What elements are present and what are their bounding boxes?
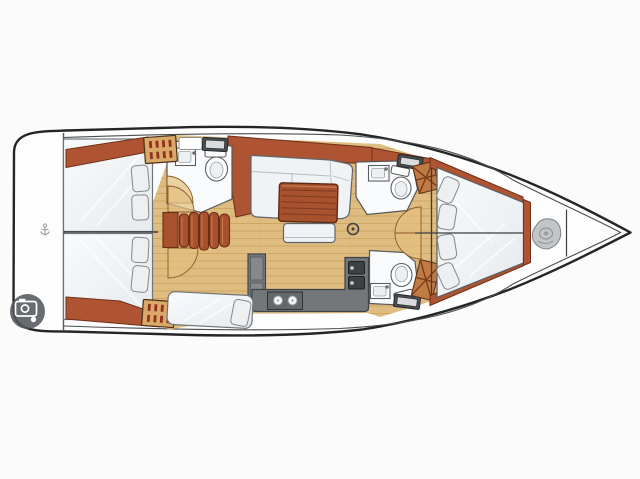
- salon-table: [278, 183, 337, 223]
- pillow: [437, 233, 458, 260]
- faucet: [384, 167, 388, 171]
- deck-hatch-aft: [202, 137, 228, 151]
- mast-post: [348, 224, 359, 235]
- forward-head-upper: [356, 161, 418, 215]
- camera-badge-icon[interactable]: [10, 294, 45, 329]
- pillow: [437, 203, 458, 230]
- aft-cabin-upper: [64, 137, 159, 232]
- faucet: [192, 151, 196, 155]
- step-landing: [163, 213, 178, 248]
- faucet: [350, 266, 354, 270]
- faucet: [350, 281, 354, 285]
- side-berth: [167, 291, 254, 328]
- boat-floor-plan: [0, 0, 640, 479]
- louvered-locker-top: [144, 135, 178, 163]
- pillow: [132, 195, 149, 221]
- pillow: [131, 165, 150, 192]
- floor-plan-canvas: [0, 0, 640, 479]
- faucet: [385, 285, 389, 289]
- pillow: [131, 237, 149, 263]
- salon-bench: [284, 224, 336, 243]
- companionway-hatch: [179, 138, 202, 150]
- berth-foot-trim: [524, 200, 531, 266]
- pillow: [131, 265, 150, 293]
